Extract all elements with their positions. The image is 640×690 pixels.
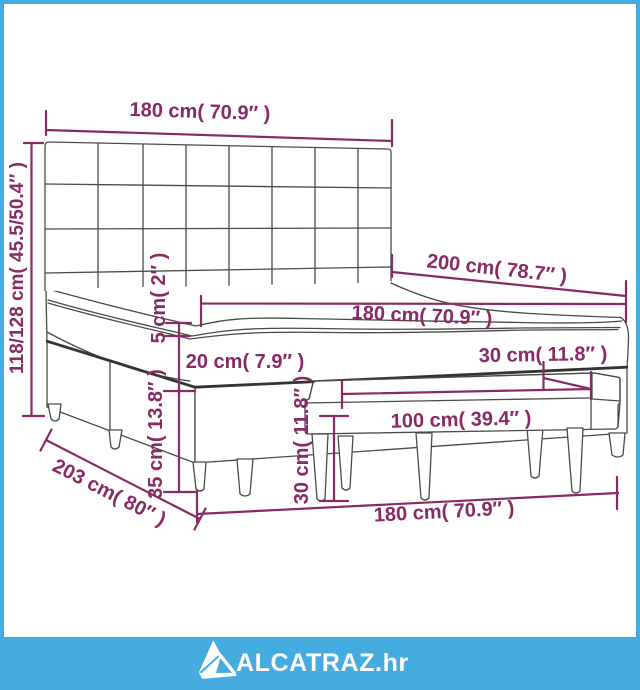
svg-text:30 cm( 11.8″ ): 30 cm( 11.8″ ) xyxy=(479,343,608,367)
svg-text:100 cm( 39.4″ ): 100 cm( 39.4″ ) xyxy=(390,407,531,432)
svg-text:30 cm( 11.8″ ): 30 cm( 11.8″ ) xyxy=(291,376,313,505)
svg-text:118/128 cm( 45.5/50.4″ ): 118/128 cm( 45.5/50.4″ ) xyxy=(7,162,28,374)
svg-text:5 cm( 2″ ): 5 cm( 2″ ) xyxy=(148,253,170,344)
svg-text:20 cm( 7.9″ ): 20 cm( 7.9″ ) xyxy=(186,351,305,373)
svg-text:35 cm( 13.8″ ): 35 cm( 13.8″ ) xyxy=(145,369,167,499)
svg-text:ALCATRAZ.hr: ALCATRAZ.hr xyxy=(236,649,409,677)
svg-text:180 cm( 70.9″ ): 180 cm( 70.9″ ) xyxy=(129,99,270,125)
